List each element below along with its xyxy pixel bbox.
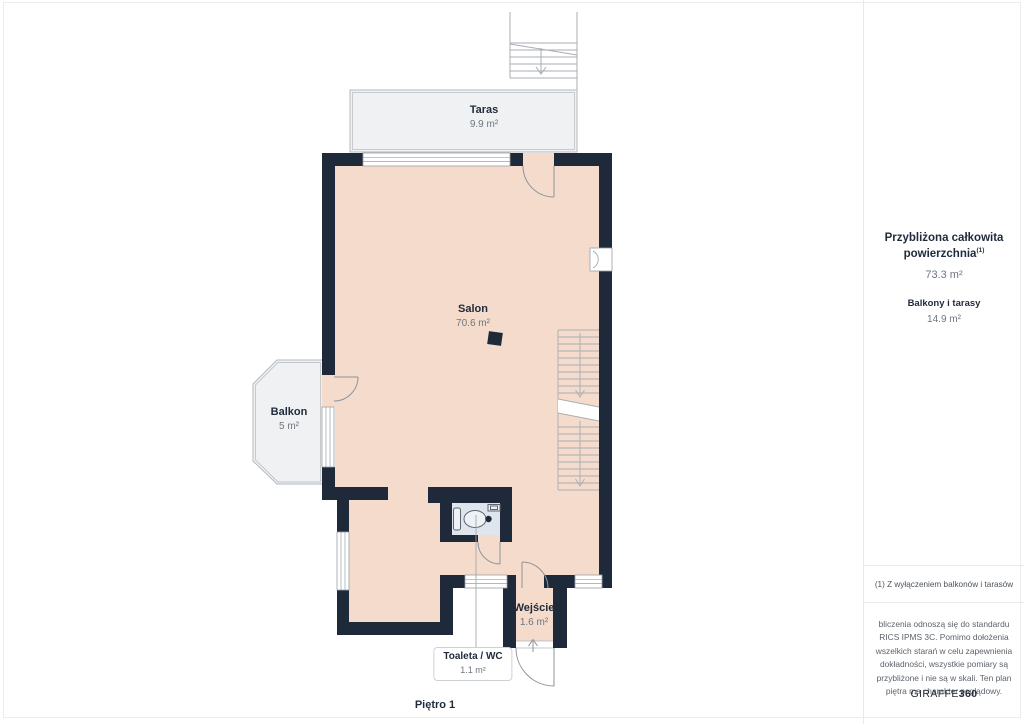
balcony-door-gap xyxy=(322,375,335,407)
window-bottom-left xyxy=(465,575,507,588)
salon-floor xyxy=(335,166,599,622)
toilet-drain-icon xyxy=(485,516,491,522)
balconies-value: 14.9 m² xyxy=(870,314,1018,325)
room-label-salon: Salon 70.6 m² xyxy=(456,303,490,330)
room-name: Taras xyxy=(470,104,499,118)
floorplan-page: { "page": { "floor_label": "Piętro 1" },… xyxy=(0,0,1024,724)
disclaimer-text: bliczenia odnoszą się do standardu RICS … xyxy=(871,601,1017,699)
room-area: 9.9 m² xyxy=(470,119,499,132)
balconies-title: Balkony i tarasy xyxy=(870,298,1018,309)
giraffe360-logo: GIRAFFE360 xyxy=(864,688,1024,700)
room-area: 1.6 m² xyxy=(514,617,555,630)
room-label-wejscie: Wejście 1.6 m² xyxy=(514,602,555,629)
room-label-toaleta: Toaleta / WC 1.1 m² xyxy=(433,647,512,681)
floor-title: Piętro 1 xyxy=(415,699,455,711)
total-area-value: 73.3 m² xyxy=(870,269,1018,281)
footnote: (1) Z wyłączeniem balkonów i tarasów xyxy=(864,565,1024,603)
window-terrace xyxy=(363,153,510,166)
footnote-marker: (1) xyxy=(976,247,984,254)
window-nook xyxy=(337,532,349,590)
room-area: 70.6 m² xyxy=(456,318,490,331)
room-label-balkon: Balkon 5 m² xyxy=(271,406,308,433)
room-label-taras: Taras 9.9 m² xyxy=(470,104,499,131)
terrace-area xyxy=(350,90,577,152)
window-balcony xyxy=(322,407,334,467)
room-area: 5 m² xyxy=(271,421,308,434)
column xyxy=(487,331,503,346)
total-area-title: Przybliżona całkowita powierzchnia(1) xyxy=(870,230,1018,262)
floorplan-drawing xyxy=(0,0,863,724)
summary-sidebar: Przybliżona całkowita powierzchnia(1) 73… xyxy=(863,0,1024,724)
sink-icon xyxy=(488,505,500,512)
area-summary: Przybliżona całkowita powierzchnia(1) 73… xyxy=(870,230,1018,325)
room-name: Balkon xyxy=(271,406,308,420)
exterior-stairs-icon xyxy=(510,12,577,90)
room-name: Toaleta / WC xyxy=(443,651,502,664)
room-name: Salon xyxy=(456,303,490,317)
entrance-door-icon xyxy=(516,648,554,686)
wall-niche xyxy=(590,248,612,271)
room-area: 1.1 m² xyxy=(443,665,502,676)
terrace-door-gap xyxy=(523,153,554,166)
window-bottom-right xyxy=(575,575,602,588)
room-name: Wejście xyxy=(514,602,555,616)
